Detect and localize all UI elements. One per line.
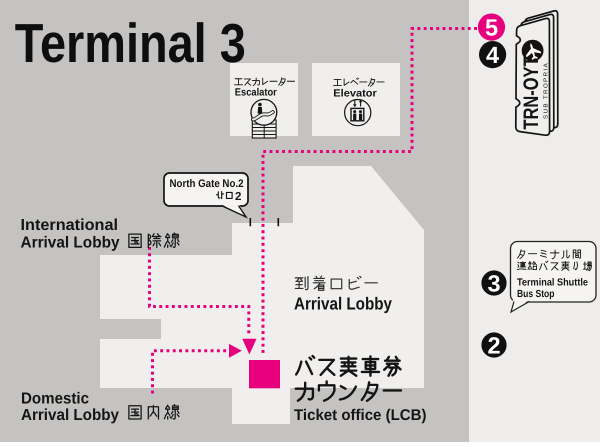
svg-text:Bus Stop: Bus Stop [517, 289, 555, 300]
svg-text:2: 2 [235, 191, 241, 203]
svg-text:Escalator: Escalator [235, 86, 277, 98]
svg-text:North Gate No.2: North Gate No.2 [170, 178, 244, 190]
svg-text:Arrival Lobby: Arrival Lobby [294, 293, 392, 313]
svg-text:5: 5 [485, 15, 498, 41]
svg-text:Arrival Lobby: Arrival Lobby [21, 407, 119, 424]
svg-text:SUB TROPRIA: SUB TROPRIA [542, 62, 549, 119]
svg-text:Terminal Shuttle: Terminal Shuttle [517, 278, 588, 289]
svg-text:3: 3 [487, 270, 500, 296]
svg-text:TRN-OYT: TRN-OYT [520, 56, 543, 129]
svg-text:Terminal 3: Terminal 3 [15, 12, 246, 74]
svg-text:4: 4 [486, 42, 499, 68]
svg-text:Arrival Lobby: Arrival Lobby [21, 235, 120, 252]
svg-text:2: 2 [487, 332, 500, 358]
svg-text:International: International [21, 217, 119, 234]
svg-text:Ticket office (LCB): Ticket office (LCB) [294, 407, 427, 424]
svg-text:Domestic: Domestic [21, 391, 89, 408]
svg-text:Elevator: Elevator [333, 88, 377, 100]
